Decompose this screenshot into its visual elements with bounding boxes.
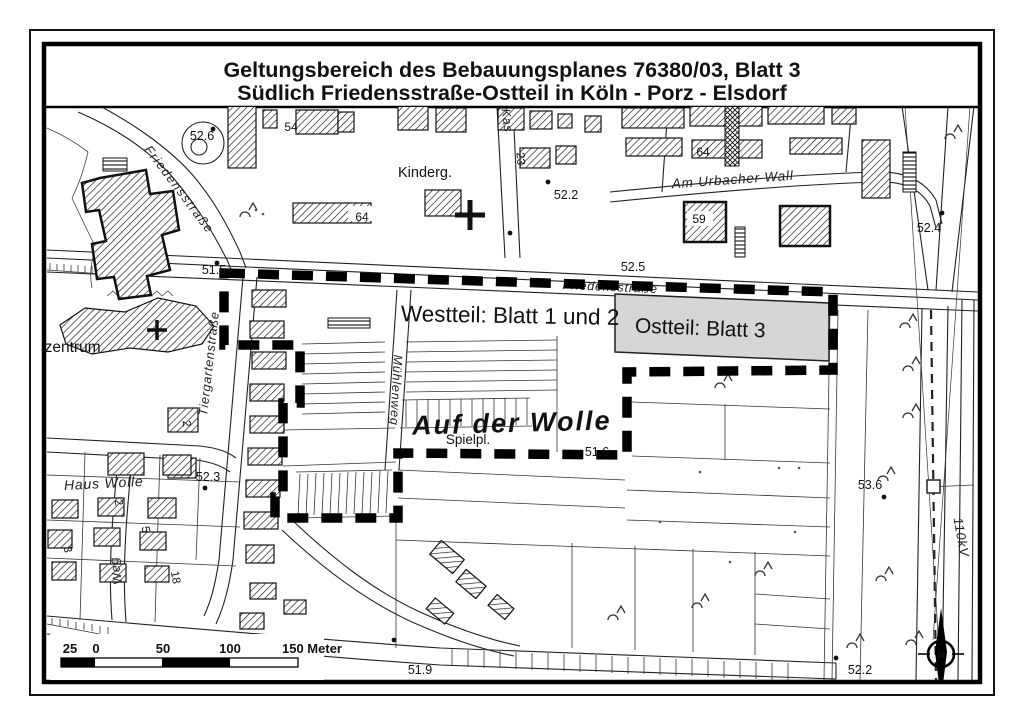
auf-der-wolle-label: Auf der Wolle: [411, 405, 612, 440]
scale-label-25: 25: [63, 641, 77, 656]
street-label-kastanien: Kas: [499, 108, 516, 133]
house-number-64a: 64: [355, 210, 369, 224]
scale-label-0: 0: [92, 641, 99, 656]
spielplatz-label: Spielpl.: [446, 432, 490, 447]
elevation-52-2-top: 52.2: [554, 188, 578, 202]
north-arrow-n-label: N: [938, 650, 945, 660]
scale-label-100: 100: [219, 641, 241, 656]
map-canvas: Geltungsbereich des Bebauungsplanes 7638…: [0, 0, 1024, 724]
house-number-59: 59: [692, 212, 706, 226]
plan-sheet: Geltungsbereich des Bebauungsplanes 7638…: [0, 0, 1024, 724]
elevation-53-6: 53.6: [858, 478, 882, 492]
house-number-5a: 5: [243, 343, 256, 350]
house-number-18: 18: [168, 570, 182, 585]
scale-bar: 25 0 50 100 150 Meter: [50, 634, 342, 680]
house-number-23: 23: [513, 152, 526, 166]
elevation-52-2-bottom: 52.2: [848, 663, 872, 677]
elevation-52-3: 52.3: [196, 470, 220, 484]
house-number-64b: 64: [696, 145, 710, 159]
elevation-51-9: 51.9: [408, 663, 432, 677]
elevation-51-5: 51.5: [202, 263, 226, 277]
pylon-symbol: [927, 480, 940, 493]
title-line-1: Geltungsbereich des Bebauungsplanes 7638…: [223, 58, 800, 82]
elevation-52-6: 52.6: [190, 129, 214, 143]
kindergarten-label: Kinderg.: [398, 165, 452, 181]
house-number-54: 54: [284, 120, 298, 134]
house-number-2a: 2: [180, 420, 193, 427]
elevation-52-5: 52.5: [621, 260, 645, 274]
scale-label-150-meter: 150 Meter: [282, 641, 342, 656]
scale-label-50: 50: [156, 641, 170, 656]
elevation-52-4: 52.4: [917, 221, 941, 235]
westteil-label: Westteil: Blatt 1 und 2: [401, 301, 620, 330]
elevation-51-6: 51.6: [585, 445, 609, 459]
title-line-2: Südlich Friedensstraße-Ostteil in Köln -…: [237, 81, 787, 105]
